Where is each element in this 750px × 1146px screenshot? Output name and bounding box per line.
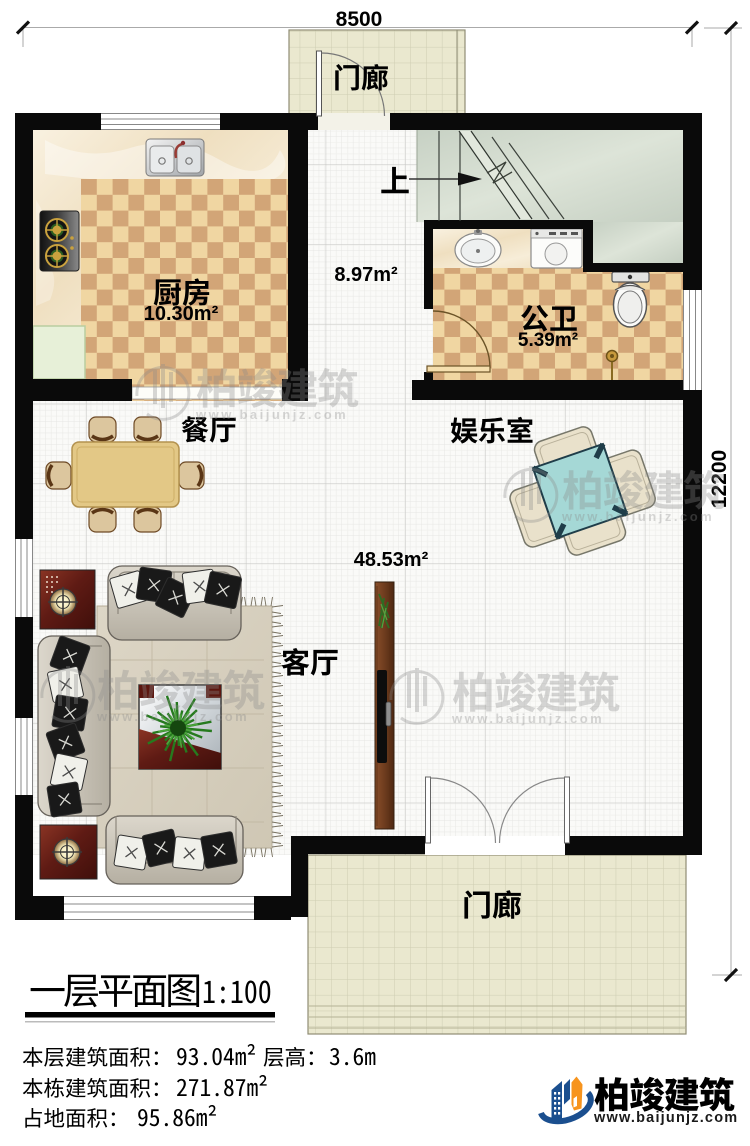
svg-text:www.baijunjz.com: www.baijunjz.com <box>96 709 249 724</box>
svg-text:8500: 8500 <box>336 8 383 31</box>
svg-text:www.baijunjz.com: www.baijunjz.com <box>593 1110 738 1126</box>
svg-text:8.97m²: 8.97m² <box>334 264 398 286</box>
svg-text:www.baijunjz.com: www.baijunjz.com <box>451 711 604 726</box>
svg-text:www.baijunjz.com: www.baijunjz.com <box>195 407 348 422</box>
svg-text:48.53m²: 48.53m² <box>354 549 429 571</box>
svg-text:10.30m²: 10.30m² <box>144 303 219 325</box>
svg-text:www.baijunjz.com: www.baijunjz.com <box>561 509 714 524</box>
svg-text:5.39m²: 5.39m² <box>518 330 578 351</box>
